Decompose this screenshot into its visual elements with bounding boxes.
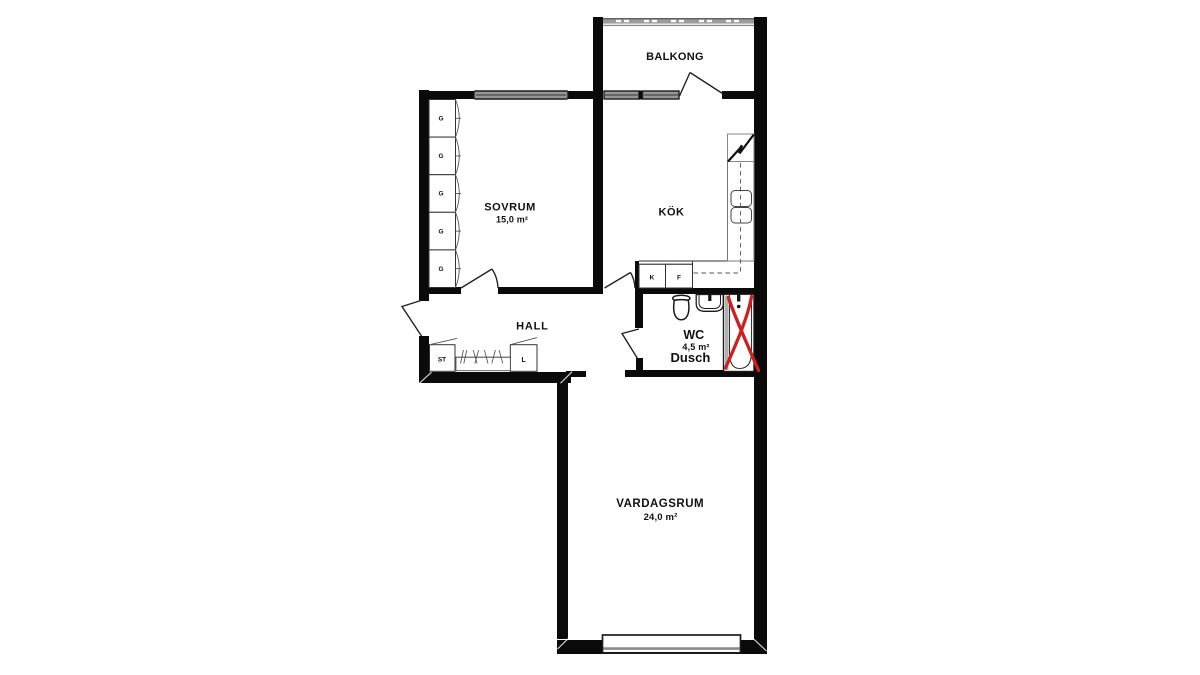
svg-text:BALKONG: BALKONG xyxy=(646,51,704,63)
svg-text:G: G xyxy=(438,191,443,198)
svg-text:24,0 m²: 24,0 m² xyxy=(644,512,678,523)
svg-text:F: F xyxy=(677,275,681,282)
svg-text:G: G xyxy=(438,266,443,273)
svg-text:ST: ST xyxy=(438,357,446,364)
svg-text:G: G xyxy=(438,153,443,160)
svg-text:15,0 m²: 15,0 m² xyxy=(496,215,528,225)
svg-text:K: K xyxy=(650,275,655,282)
svg-text:VARDAGSRUM: VARDAGSRUM xyxy=(616,498,704,510)
svg-text:HALL: HALL xyxy=(516,321,549,333)
svg-text:WC: WC xyxy=(683,328,704,342)
svg-text:Dusch: Dusch xyxy=(671,350,711,365)
svg-text:L: L xyxy=(521,357,526,364)
svg-text:SOVRUM: SOVRUM xyxy=(484,202,536,214)
svg-text:G: G xyxy=(438,116,443,123)
svg-text:KÖK: KÖK xyxy=(659,206,685,219)
svg-text:G: G xyxy=(438,228,443,235)
